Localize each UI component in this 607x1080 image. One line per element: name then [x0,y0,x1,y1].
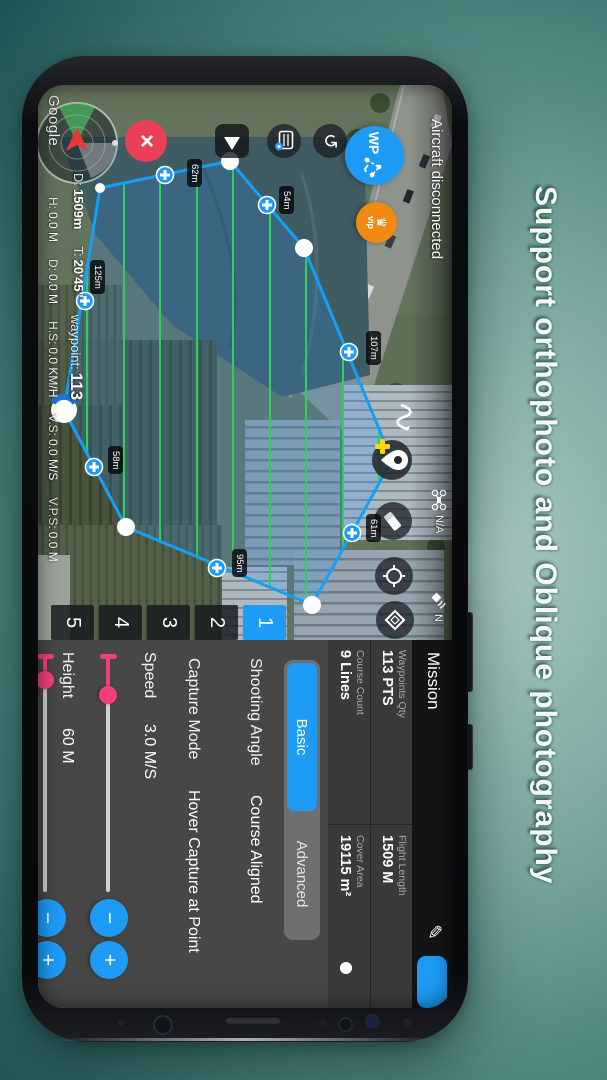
satellite-count: N [433,614,445,622]
speed-slider-thumb[interactable] [99,686,117,704]
mission-settings-button[interactable] [267,124,301,158]
waypoint-route-icon [363,157,387,179]
eraser-icon [383,510,403,532]
capture-mode-value[interactable]: Hover Capture at Point [184,790,202,960]
power-button [467,724,473,770]
undo-button[interactable]: ↺ [313,124,347,158]
speed-minus-button[interactable]: − [90,899,128,937]
tab-page-5[interactable]: 5 [51,605,94,640]
vip-button[interactable]: ♛ vip [356,202,397,243]
tab-page-1[interactable]: 1 [243,605,286,640]
tab-basic[interactable]: Basic [287,663,317,811]
list-gear-icon [274,130,294,152]
mission-panel-header: Mission ✎ [412,640,452,1008]
waypoint-vertex[interactable] [303,596,321,614]
edge-distance-label: 95m [233,549,248,577]
front-camera [153,1015,173,1035]
shooting-angle-value[interactable]: Course Aligned [246,795,264,904]
sensor-dot [118,1020,124,1026]
crosshair-icon [382,564,406,588]
stat-waypoints: Waypoints Qty113 PTS [370,640,412,825]
speed-plus-button[interactable]: + [90,941,128,979]
height-minus-button[interactable]: − [38,899,66,937]
speed-label: Speed [140,652,158,698]
compass-north-dot [112,140,118,146]
play-icon [224,137,240,150]
tab-page-3[interactable]: 3 [147,605,190,640]
satellite-icon [430,591,447,610]
edge-distance-label: 107m [367,331,382,365]
height-value: 60 M [58,728,76,764]
tab-page-4[interactable]: 4 [99,605,142,640]
app-landscape-stage: 62m 54m 107m 61m 95m 58m 125m Aircraft d… [38,85,452,1008]
panel-corner-button[interactable] [417,956,447,1008]
shooting-angle-label: Shooting Angle [246,658,264,766]
pencil-icon: ✎ [423,924,444,940]
height-slider-tick [38,654,54,659]
layers-diamond-icon [384,609,406,631]
tab-page-2[interactable]: 2 [195,605,238,640]
map-watermark: Google [45,95,62,146]
edge-distance-label: 125m [91,260,106,294]
aircraft-battery-status: N/A [433,515,445,533]
close-mission-button[interactable]: × [125,120,167,162]
map-layers-button[interactable] [376,601,414,639]
mode-segmented-control: Advanced Basic [284,660,320,940]
sensor-dot [403,1018,412,1027]
iris-sensor [365,1014,380,1029]
waypoint-vertex[interactable] [295,239,313,257]
edge-distance-label: 61m [367,514,382,542]
marketing-caption: Support orthophoto and Oblique photograp… [528,186,562,885]
wp-mission-type-button[interactable]: WP [345,126,404,185]
telemetry-row-mission: D:1509m T:20'45" waypoint:113 [66,173,86,417]
phone-mockup: 62m 54m 107m 61m 95m 58m 125m Aircraft d… [22,56,468,1042]
panel-page-tabs: 1 2 3 4 5 [51,605,286,640]
vip-label: vip [366,216,375,229]
sensor-dot [338,1017,353,1032]
edge-distance-label: 62m [188,159,203,187]
panel-title: Mission [423,652,443,710]
mission-panel: Mission ✎ Waypoints Qty113 PTS Flight Le… [38,640,452,1008]
undo-icon: ↺ [319,133,342,149]
crown-icon: ♛ [375,217,387,229]
waypoint-vertex[interactable] [117,518,135,536]
stat-cover-area: Cover Area19115 m² [328,825,370,1008]
phone-screen: 62m 54m 107m 61m 95m 58m 125m Aircraft d… [38,85,452,1008]
sensor-dot [319,1019,327,1027]
earpiece-speaker [225,1016,281,1024]
height-plus-button[interactable]: + [38,941,66,979]
tab-advanced[interactable]: Advanced [284,811,320,937]
close-icon: × [132,134,160,148]
edge-distance-label: 58m [109,446,124,474]
drone-icon [431,489,447,511]
capture-mode-label: Capture Mode [184,658,202,759]
route-smoothing-icon[interactable] [394,402,416,434]
height-label: Height [58,652,76,698]
edit-mission-button[interactable]: ✎ [422,924,445,940]
height-slider-thumb[interactable] [38,671,54,689]
speed-value: 3.0 M/S [140,724,158,779]
stats-indicator-dot [340,962,352,974]
play-mission-button[interactable] [215,124,249,158]
volume-button [467,612,473,692]
telemetry-row-aircraft: H:0.0 M D:0.0 M H.S:0.0 KM/H V.S:0.0 M/S… [46,197,60,579]
edge-distance-label: 54m [280,186,295,214]
height-slider-track[interactable] [43,656,47,892]
mission-stats-grid: Waypoints Qty113 PTS Flight Length1509 M… [328,640,412,1008]
stat-course-count: Course Count9 Lines [328,640,370,825]
locate-button[interactable] [375,557,413,595]
aircraft-status-text: Aircraft disconnected [428,119,445,259]
speed-slider-tick [100,654,117,659]
mission-settings: Advanced Basic Shooting Angle Course Ali… [38,640,328,1008]
stat-flight-length: Flight Length1509 M [370,825,412,1008]
wp-label: WP [367,132,383,155]
